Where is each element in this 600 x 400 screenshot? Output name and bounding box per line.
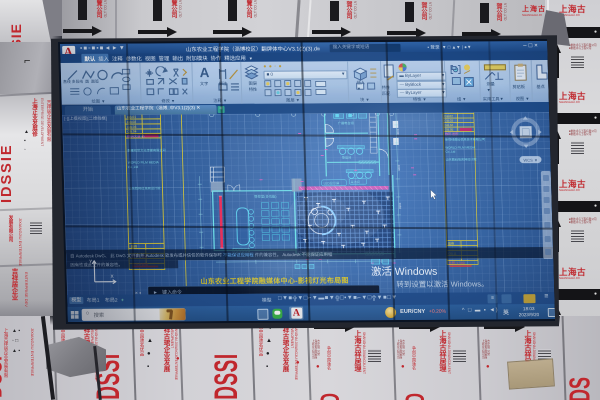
svg-text:山东数码信息网设计院: 山东数码信息网设计院 [128, 185, 161, 190]
svg-text:WORLD FILM MEDIA: WORLD FILM MEDIA [128, 160, 160, 164]
svg-text:WCS ▼: WCS ▼ [523, 158, 538, 163]
svg-text:转到设置以激活 Windows。: 转到设置以激活 Windows。 [396, 278, 489, 289]
svg-text:Y: Y [89, 259, 92, 264]
svg-text:6900: 6900 [398, 202, 402, 209]
svg-text:朝槿视觉文化传媒有限公司: 朝槿视觉文化传媒有限公司 [127, 147, 165, 152]
svg-text:图例: 图例 [448, 241, 454, 246]
svg-text:X: X [111, 274, 114, 279]
svg-text:比例 1:100: 比例 1:100 [449, 260, 465, 265]
svg-text:4200: 4200 [397, 164, 401, 171]
